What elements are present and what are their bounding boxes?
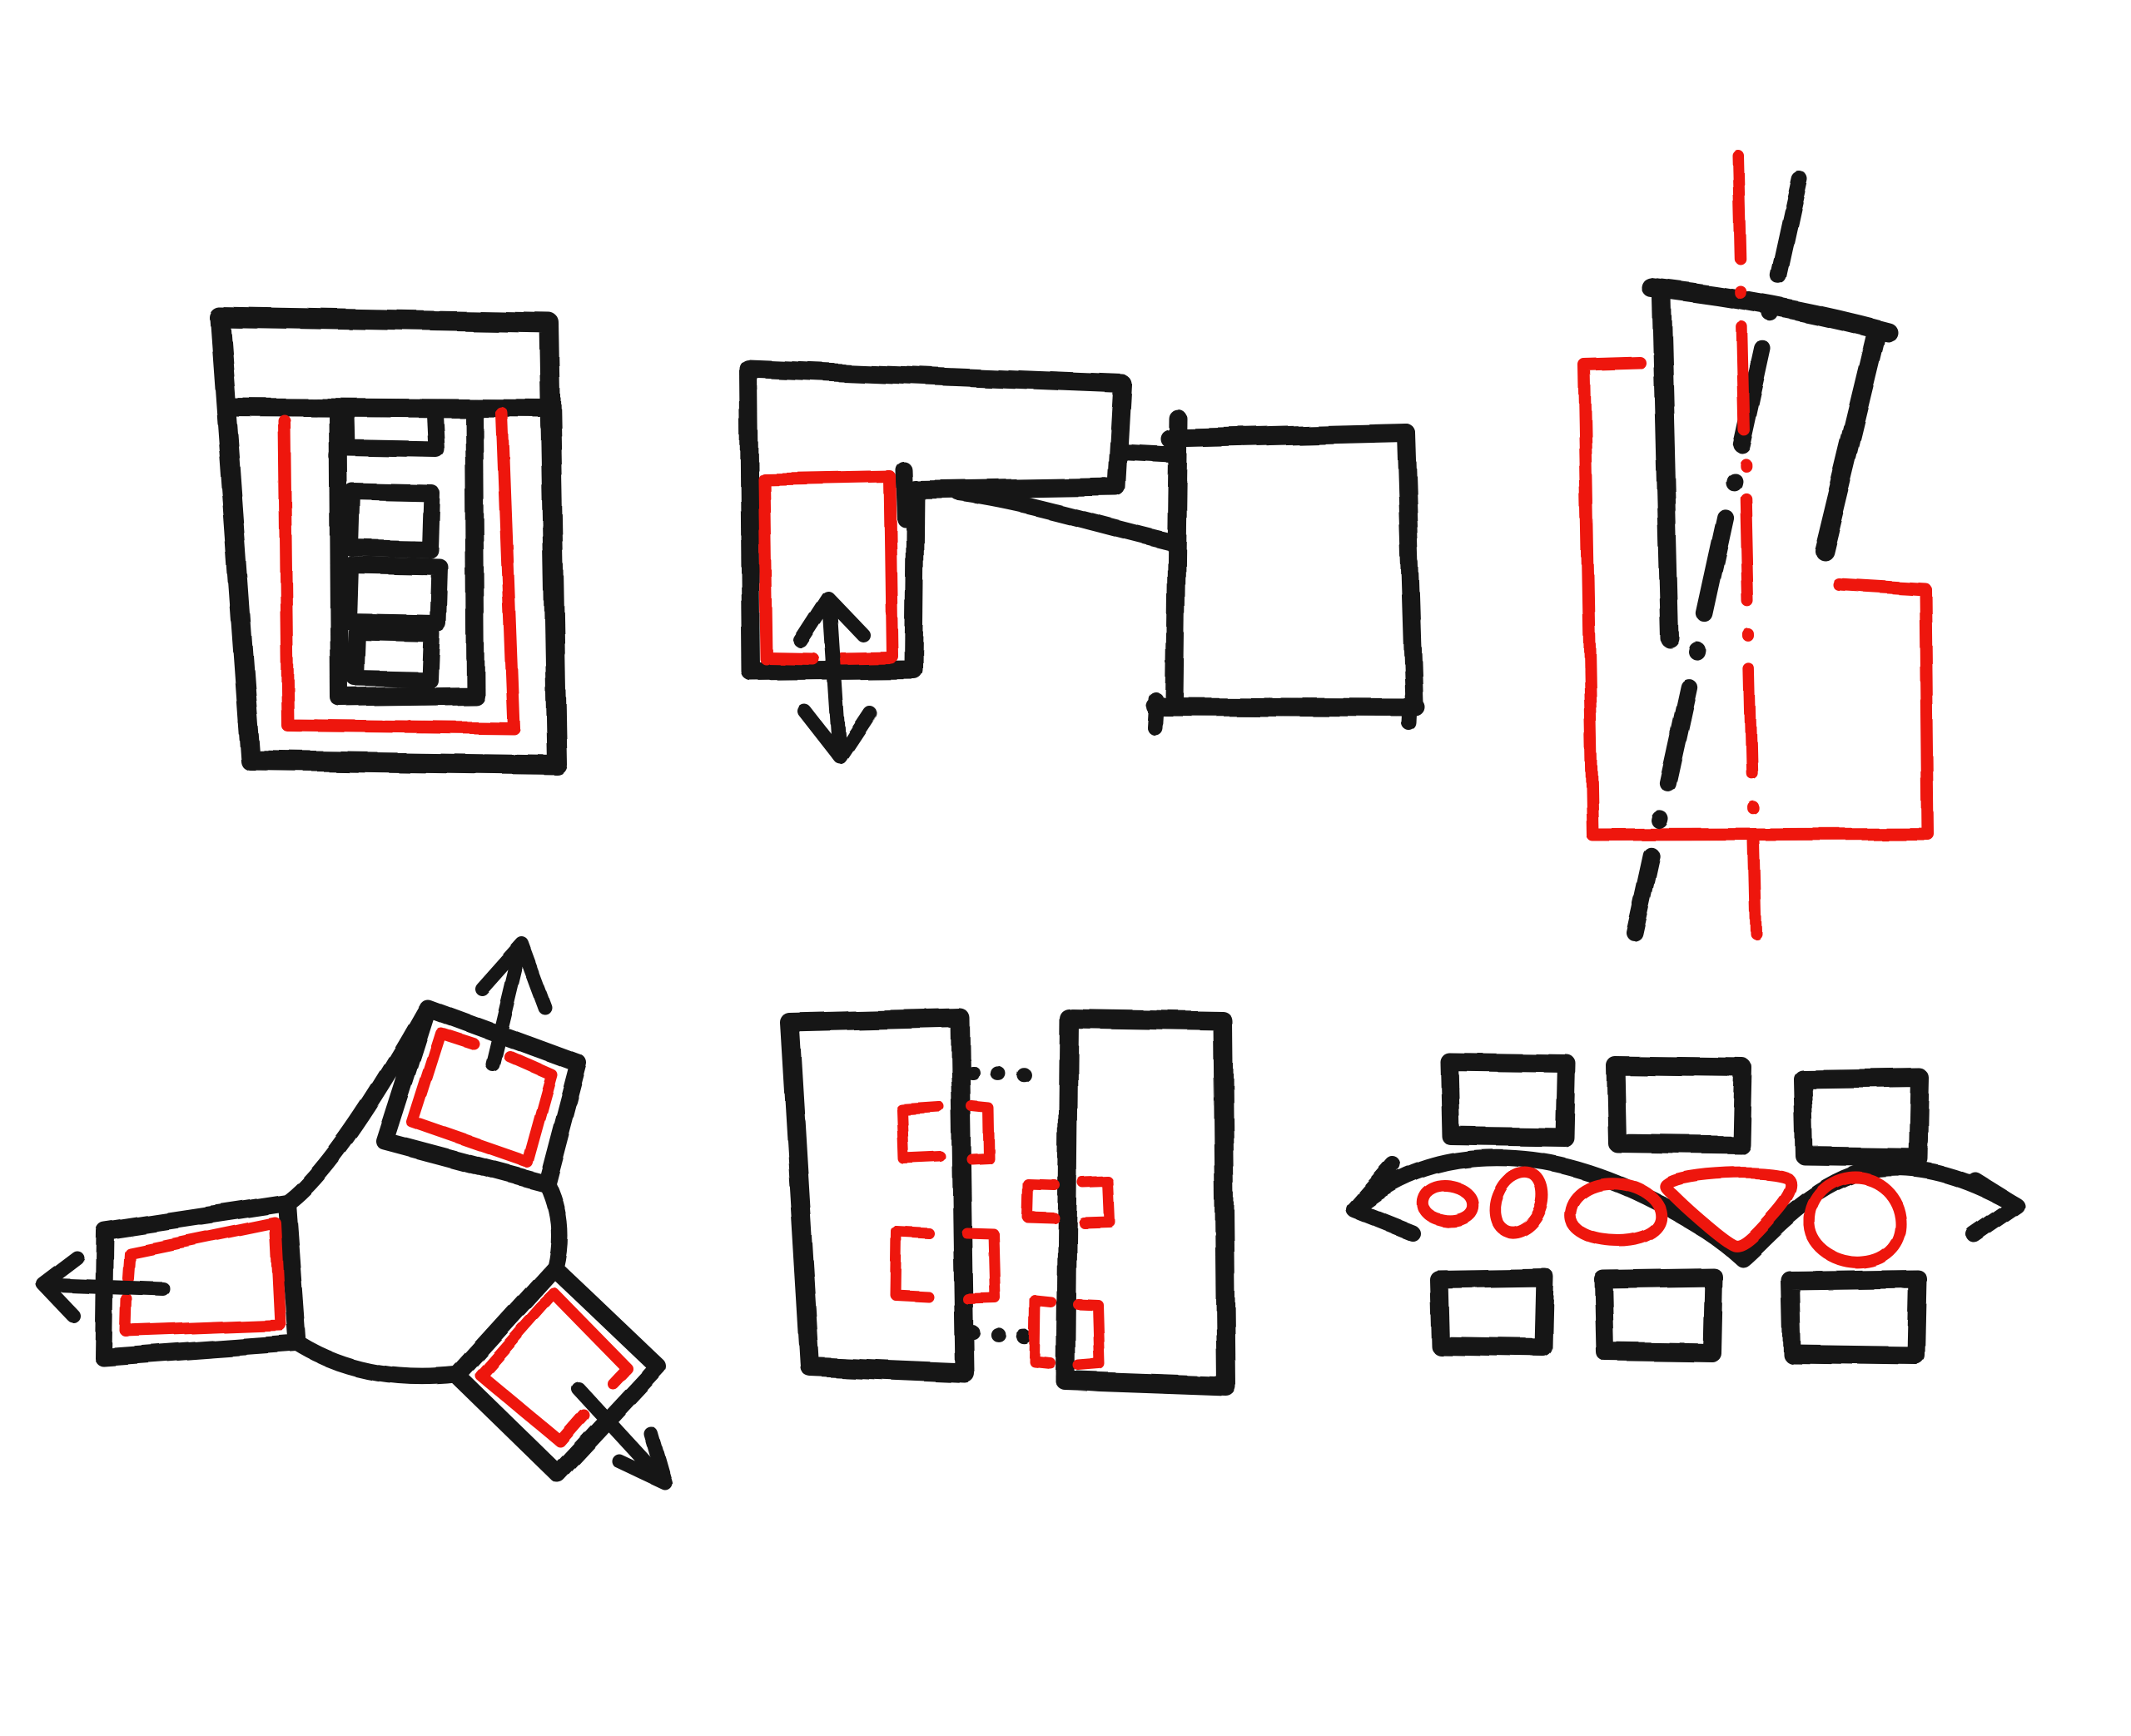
left-arm-red-room bbox=[126, 1223, 281, 1331]
diagram-shifted-tower bbox=[1584, 156, 1928, 933]
bracket-1-right bbox=[971, 1106, 989, 1159]
bracket-2-left bbox=[1027, 1184, 1055, 1218]
detached-block-left-edge bbox=[1175, 419, 1178, 702]
core-cell-4 bbox=[355, 632, 431, 680]
core-cell-2 bbox=[351, 492, 432, 550]
left-bar bbox=[789, 1018, 965, 1373]
right-bar bbox=[1065, 1019, 1226, 1386]
diagram-paired-bars bbox=[789, 1018, 1226, 1386]
diagram-weaving-path bbox=[1354, 1062, 2016, 1356]
path-arrow-head-right bbox=[1974, 1179, 2016, 1234]
diagram-three-arm-pinwheel bbox=[43, 944, 665, 1483]
corner-tick-right bbox=[1409, 706, 1410, 723]
detached-block-bottom-edge bbox=[1155, 707, 1416, 707]
bracket-2-right bbox=[1083, 1182, 1110, 1223]
bracket-4-left bbox=[1035, 1301, 1051, 1363]
red-panel-bottom-left bbox=[767, 658, 813, 659]
block-bottom-2 bbox=[1603, 1277, 1714, 1353]
link-curve bbox=[959, 493, 1170, 542]
arrow-left-shaft bbox=[46, 1285, 163, 1289]
core-cell-1 bbox=[346, 414, 436, 449]
dotted-tie-top bbox=[972, 1073, 1047, 1076]
red-panel-bottom-right bbox=[842, 657, 891, 658]
red-space-2 bbox=[1496, 1173, 1543, 1233]
bracket-3-left bbox=[896, 1232, 929, 1297]
link-line bbox=[1122, 452, 1171, 454]
diagram-courtyard-block bbox=[219, 317, 557, 765]
inner-corner-stub bbox=[904, 470, 906, 519]
bracket-1-left bbox=[902, 1107, 941, 1158]
detached-block-top-edge bbox=[1170, 433, 1406, 439]
diagram-l-shaped-extension bbox=[748, 369, 1416, 756]
tower-left-edge bbox=[1662, 297, 1670, 638]
detached-block-right-edge bbox=[1406, 433, 1414, 704]
corner-tick-left bbox=[1155, 700, 1156, 727]
tower-right-edge bbox=[1824, 337, 1875, 550]
body-edge-bottom bbox=[298, 1343, 455, 1376]
body-edge-right bbox=[548, 1185, 559, 1267]
extension-arrow-shaft bbox=[829, 601, 839, 754]
block-top-2 bbox=[1616, 1066, 1743, 1145]
red-space-5 bbox=[1810, 1178, 1901, 1263]
block-bottom-3 bbox=[1791, 1279, 1918, 1356]
sketch-sheet bbox=[0, 0, 2131, 1736]
sketch-canvas bbox=[0, 0, 2131, 1736]
block-top-1 bbox=[1449, 1062, 1567, 1138]
bracket-4-right bbox=[1078, 1304, 1100, 1366]
red-datum-axis bbox=[1738, 156, 1756, 933]
red-space-1 bbox=[1423, 1187, 1473, 1221]
block-top-3 bbox=[1803, 1078, 1920, 1158]
block-bottom-1 bbox=[1438, 1277, 1545, 1347]
red-space-3 bbox=[1570, 1183, 1662, 1242]
core-cell-3 bbox=[349, 565, 440, 623]
